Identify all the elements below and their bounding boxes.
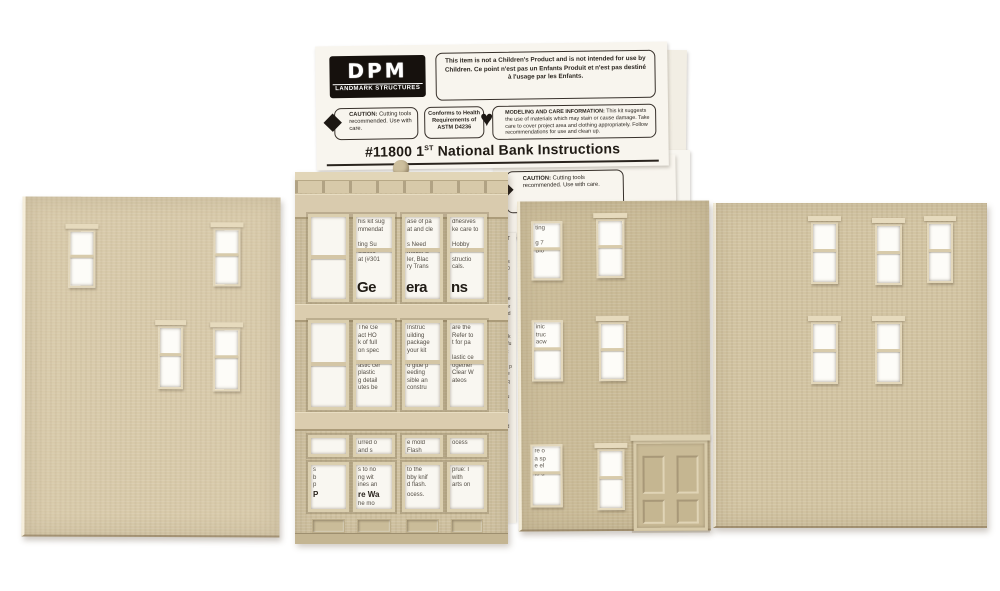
door-panel [677,500,699,524]
title-rest: National Bank Instructions [433,140,620,159]
title-rule [327,160,659,167]
window-glimpse-text: ocess. [405,490,440,500]
caution-box: CAUTION: Cutting tools recommended. Use … [334,107,418,140]
storefront-window: s to no ng wit ines an re Wa he mo [353,462,395,512]
children-warning-fr: Ce point n'est pas un Enfants Produit et… [474,63,646,80]
window-glimpse-text: s b p [311,465,346,490]
window-sash [450,248,484,252]
window-glimpse-text: ase of pa at and cle s Need Model S ler,… [405,217,440,272]
second-caution-text: CAUTION: Cutting tools recommended. Use … [523,174,619,190]
window [811,222,838,284]
product-photo: CAUTION: Cutting tools recommended. Use … [0,0,1000,591]
cornice-dentils [295,181,508,193]
window-glimpse-headline: Ge [357,280,376,295]
second-caution-label: CAUTION: [523,176,551,182]
window-glimpse-text: he mo [356,499,392,509]
window-sash [450,360,484,364]
window-glimpse-text: The Ge act HO k of full on spec astic ce… [356,323,392,393]
window [158,326,183,389]
floor-divider [295,412,508,431]
window [213,328,240,391]
astm-text: Conforms to Health Requirements of ASTM … [427,110,481,132]
window-glimpse-headline: ns [451,280,468,295]
window: dhesives ke care to Hobby structio cals.… [447,214,487,302]
transom-window [308,435,349,457]
window-sash [405,248,440,252]
window: re o a sp e el to u [530,444,562,507]
window [596,219,624,278]
transom-window: ocess [447,435,487,457]
window [599,322,626,381]
window [875,224,902,285]
window: are the Refer to t for pa lastic ce oget… [447,320,487,410]
window-glimpse-text [450,490,484,492]
heart-icon: ♥ [480,108,493,130]
window-sash [356,248,392,252]
window-glimpse-text: re o a sp e el to u [532,446,560,478]
caution-label: CAUTION: [349,112,377,118]
transom-window: urred o and s [353,435,395,457]
window-glimpse-text: to the bby knif d flash. [405,465,440,490]
window-glimpse-text: are the Refer to t for pa lastic ce oget… [450,323,484,385]
window-sash [311,255,346,259]
window [213,228,240,286]
sheet-title: #11800 1ST National Bank Instructions [317,140,669,161]
window-glimpse-text: prue: I with arts on [450,465,484,490]
window-glimpse-text: his kit sug mmendat ting Su Scisso at (#… [356,217,392,264]
landmark-structures-text: LANDMARK STRUCTURES [333,83,423,92]
title-superscript: ST [424,145,433,152]
window-sash [311,362,346,366]
window-glimpse-text: inic truc acw [534,322,561,347]
door-leaf [638,448,668,525]
transom-window: e mold Flash [402,435,443,457]
base-panel [406,519,439,533]
entry-door [633,441,707,531]
wall-panel-front-facade: his kit sug mmendat ting Su Scisso at (#… [295,172,508,543]
cornice-top [295,172,508,181]
window: Instruc uilding package your kit o glue … [402,320,443,410]
window [927,222,953,283]
window-glimpse-text [311,499,346,501]
window-glimpse-text: ting g 7 Bio [533,223,560,255]
window-sash [405,360,440,364]
window-glimpse-text: dhesives ke care to Hobby structio cals. [450,217,484,272]
title-prefix: #11800 1 [365,143,424,160]
window-glimpse-text: ocess [450,438,484,448]
children-warning-box: This item is not a Children's Product an… [435,50,656,101]
base-panel [357,519,391,533]
dpm-logo: DPM LANDMARK STRUCTURES [329,55,426,98]
storefront-window: to the bby knif d flash. ocess. [402,462,443,512]
window [811,322,838,384]
care-box: MODELING AND CARE INFORMATION: This kit … [492,104,656,140]
storefront-window: prue: I with arts on [447,462,487,512]
base-panel [451,519,483,533]
window: ting g 7 Bio [531,221,562,280]
wall-panel-left [21,197,280,538]
window [308,214,349,302]
window [68,230,95,288]
children-warning-text: This item is not a Children's Product an… [442,55,648,83]
dpm-logo-text: DPM [329,58,425,83]
window: The Ge act HO k of full on spec astic ce… [353,320,395,410]
window [875,322,902,384]
window-sash [356,360,392,364]
astm-box: Conforms to Health Requirements of ASTM … [424,106,484,139]
door-panel [642,456,664,494]
door-leaf [673,448,703,525]
window-glimpse-bold: re Wa [356,490,392,499]
instruction-sheet: DPM LANDMARK STRUCTURES This item is not… [315,42,669,171]
storefront-window: s b p P [308,462,349,512]
base-panel [312,519,345,533]
window-glimpse-text: Instruc uilding package your kit o glue … [405,323,440,393]
window-glimpse-text: urred o and s [356,438,392,455]
window-glimpse-headline: era [406,280,427,295]
window-glimpse-text: s to no ng wit ines an [356,465,392,490]
window: inic truc acw [532,320,563,381]
window-glimpse-text [311,438,346,440]
door-panel [643,500,665,524]
wall-panel-side: ting g 7 Bio inic truc acw re o a sp e e… [517,200,711,531]
caution-text: CAUTION: Cutting tools recommended. Use … [349,111,414,134]
window: ase of pa at and cle s Need Model S ler,… [402,214,443,302]
facade-base-band [295,533,508,544]
wall-panel-right [713,203,987,528]
care-text: MODELING AND CARE INFORMATION: This kit … [505,108,651,137]
window [308,320,349,410]
window-glimpse-bold: P [311,490,346,499]
window: his kit sug mmendat ting Su Scisso at (#… [353,214,395,302]
window-glimpse-text: e mold Flash [405,438,440,455]
window [597,449,624,510]
door-panel [677,456,699,494]
